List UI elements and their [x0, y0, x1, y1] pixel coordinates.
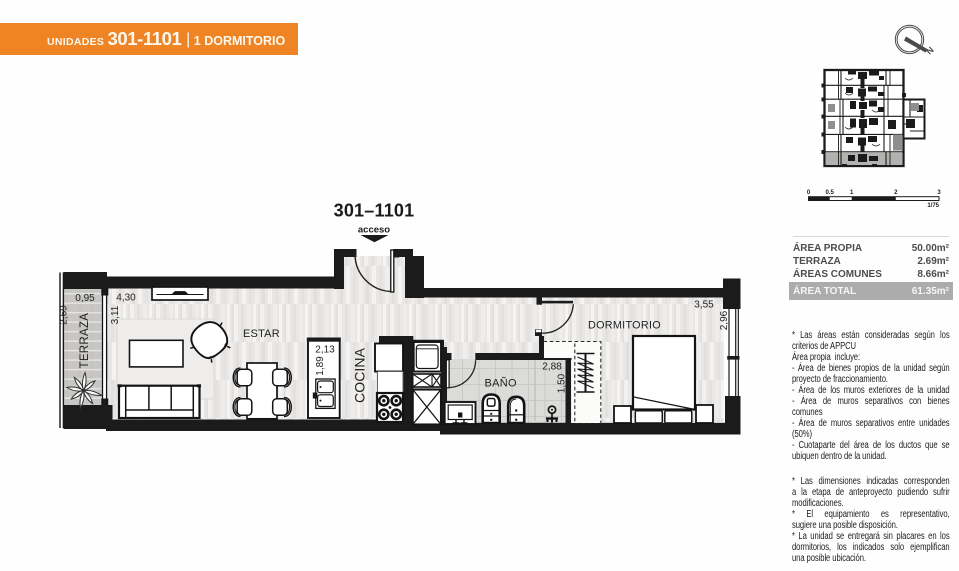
- svg-text:2,96: 2,96: [719, 310, 730, 330]
- svg-text:3: 3: [937, 190, 941, 196]
- svg-text:2,88: 2,88: [542, 362, 562, 373]
- svg-text:BAÑO: BAÑO: [485, 377, 518, 390]
- svg-text:0: 0: [807, 190, 811, 196]
- svg-text:2,13: 2,13: [315, 345, 335, 356]
- svg-text:3,11: 3,11: [110, 305, 121, 324]
- svg-text:acceso: acceso: [358, 225, 390, 236]
- svg-text:ESTAR: ESTAR: [243, 328, 280, 340]
- svg-text:0.5: 0.5: [826, 190, 835, 196]
- svg-text:1,50: 1,50: [557, 373, 568, 393]
- svg-text:TERRAZA: TERRAZA: [79, 313, 91, 369]
- svg-text:4,30: 4,30: [116, 293, 136, 304]
- svg-text:N: N: [924, 45, 936, 57]
- svg-text:301–1101: 301–1101: [334, 201, 415, 221]
- svg-text:DORMITORIO: DORMITORIO: [588, 320, 661, 332]
- svg-text:COCINA: COCINA: [352, 347, 368, 403]
- svg-text:1,89: 1,89: [315, 356, 326, 376]
- svg-text:1/75: 1/75: [927, 203, 939, 209]
- svg-text:1: 1: [850, 190, 854, 196]
- svg-text:2: 2: [894, 190, 898, 196]
- svg-text:3,55: 3,55: [694, 300, 714, 311]
- svg-text:0,95: 0,95: [75, 293, 95, 304]
- svg-text:2,69: 2,69: [59, 305, 70, 325]
